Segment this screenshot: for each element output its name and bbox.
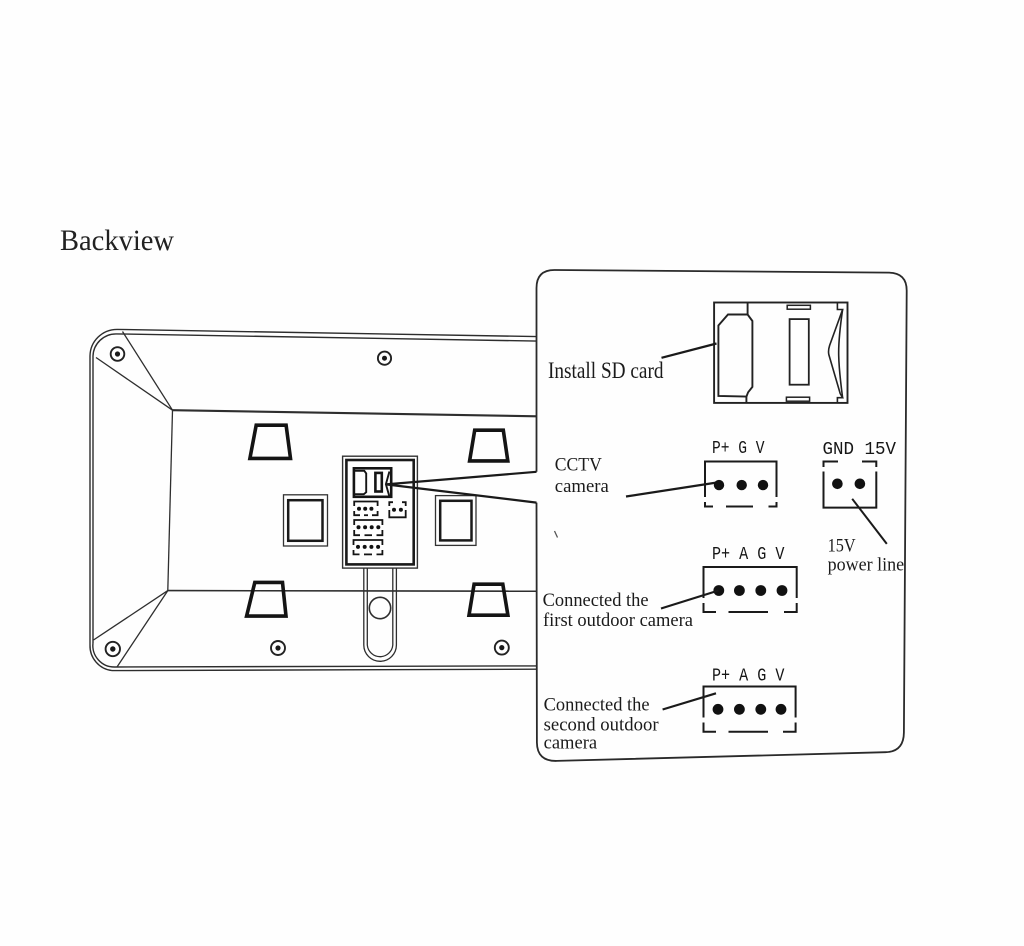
svg-text:first outdoor camera: first outdoor camera: [543, 610, 694, 631]
svg-text:P+ G V: P+ G V: [712, 439, 765, 459]
svg-text:P+ A G V: P+ A G V: [712, 545, 785, 565]
svg-text:15V: 15V: [828, 536, 856, 557]
svg-text:power line: power line: [828, 555, 905, 576]
svg-text:camera: camera: [544, 733, 598, 754]
svg-text:Backview: Backview: [60, 224, 174, 257]
svg-text:Connected the: Connected the: [543, 590, 649, 611]
svg-text:camera: camera: [555, 476, 609, 497]
svg-text:Install SD card: Install SD card: [548, 358, 664, 383]
svg-text:GND 15V: GND 15V: [823, 440, 897, 460]
svg-text:Connected the: Connected the: [544, 695, 650, 716]
svg-text:CCTV: CCTV: [555, 454, 603, 475]
svg-text:P+ A G V: P+ A G V: [712, 666, 785, 686]
